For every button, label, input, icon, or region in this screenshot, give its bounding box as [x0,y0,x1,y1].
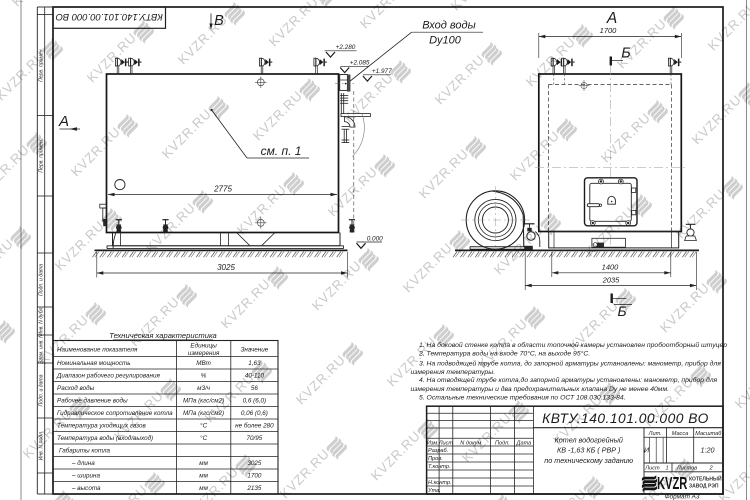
svg-text:Подп.: Подп. [495,440,510,446]
svg-text:измерения: измерения [188,350,220,357]
svg-text:2135: 2135 [246,485,262,492]
svg-text:+2.280: +2.280 [336,44,356,51]
svg-text:Масштаб: Масштаб [695,431,722,437]
svg-text:+2.085: +2.085 [350,60,370,67]
svg-text:А: А [606,10,617,27]
svg-text:3. На подводящей трубе котла,: 3. На подводящей трубе котла, до запорно… [419,360,721,368]
svg-text:2775: 2775 [213,185,232,194]
svg-text:Рабочее давление воды: Рабочее давление воды [57,397,128,405]
svg-text:Т.контр.: Т.контр. [428,464,451,470]
svg-text:измерения температуры и два пр: измерения температуры и два предохраните… [411,385,670,393]
svg-text:Dy100: Dy100 [429,34,462,46]
svg-text:Разраб.: Разраб. [428,448,448,454]
svg-text:Техническая характеристика: Техническая характеристика [109,331,217,340]
svg-text:И: И [644,446,650,455]
svg-text:Инв. N дубл.: Инв. N дубл. [39,306,45,336]
svg-text:2035: 2035 [602,275,621,284]
svg-text:не более 280: не более 280 [235,422,274,430]
svg-text:А: А [58,113,69,130]
svg-text:%: % [201,373,207,380]
svg-text:– высота: – высота [71,485,101,492]
svg-text:Номинальная мощность: Номинальная мощность [57,360,131,367]
svg-text:Лист: Лист [438,440,454,446]
svg-text:КОТЕЛЬНЫЙ: КОТЕЛЬНЫЙ [689,475,722,483]
svg-text:КВТУ.140.101.00.000 ВО: КВТУ.140.101.00.000 ВО [55,11,163,22]
svg-text:МВт: МВт [196,360,211,367]
svg-text:КВ -1,63 КБ ( РВР ): КВ -1,63 КБ ( РВР ) [557,446,620,455]
svg-text:мм: мм [199,460,208,467]
svg-text:Лист: Лист [644,466,660,472]
svg-text:Наименование показателя: Наименование показателя [57,347,138,354]
svg-text:1:20: 1:20 [701,446,715,455]
svg-text:ЗАВОД РЭП: ЗАВОД РЭП [689,484,719,490]
svg-text:Масса: Масса [672,431,689,437]
svg-text:измерения температуры.: измерения температуры. [411,369,496,376]
svg-text:0,06 (0,6): 0,06 (0,6) [241,410,268,417]
svg-text:м3/ч: м3/ч [197,385,211,392]
svg-text:Значение: Значение [241,347,269,354]
svg-text:Единицы: Единицы [190,342,217,350]
svg-text:Температура воды (вход/выход): Температура воды (вход/выход) [57,434,153,442]
svg-text:Формат А3: Формат А3 [665,493,700,500]
svg-text:1700: 1700 [600,26,618,35]
svg-text:1700: 1700 [247,473,262,480]
svg-text:3025: 3025 [217,263,235,272]
svg-text:Расход воды: Расход воды [57,384,95,392]
svg-text:Утв.: Утв. [427,488,441,494]
svg-text:1400: 1400 [602,263,620,272]
svg-text:°С: °С [200,422,208,430]
svg-text:мм: мм [199,473,208,480]
svg-text:0,6 (6,0): 0,6 (6,0) [243,398,266,405]
svg-text:56: 56 [251,385,259,392]
svg-text:70/95: 70/95 [247,435,263,442]
svg-text:Дата: Дата [516,440,532,446]
svg-text:по техническому заданию: по техническому заданию [544,456,633,465]
svg-text:Подп. и дата: Подп. и дата [39,374,45,406]
svg-text:Подп. и дата: Подп. и дата [39,264,45,296]
svg-text:Лит.: Лит. [648,431,662,437]
svg-text:см. п. 1: см. п. 1 [261,144,302,158]
svg-text:Н.контр.: Н.контр. [428,480,452,486]
svg-text:Диапазон рабочего регулировани: Диапазон рабочего регулирования [56,372,160,380]
svg-text:Вход воды: Вход воды [422,19,475,31]
svg-text:Пров.: Пров. [428,456,443,462]
svg-text:– ширина: – ширина [71,473,100,480]
svg-text:0.000: 0.000 [367,235,383,242]
svg-text:4. На отводящей трубе котла,д: 4. На отводящей трубе котла,до запорной … [419,376,718,384]
svg-text:– длина: – длина [71,459,95,467]
svg-text:°С: °С [200,434,208,442]
svg-text:Габариты котла: Габариты котла [59,447,111,455]
